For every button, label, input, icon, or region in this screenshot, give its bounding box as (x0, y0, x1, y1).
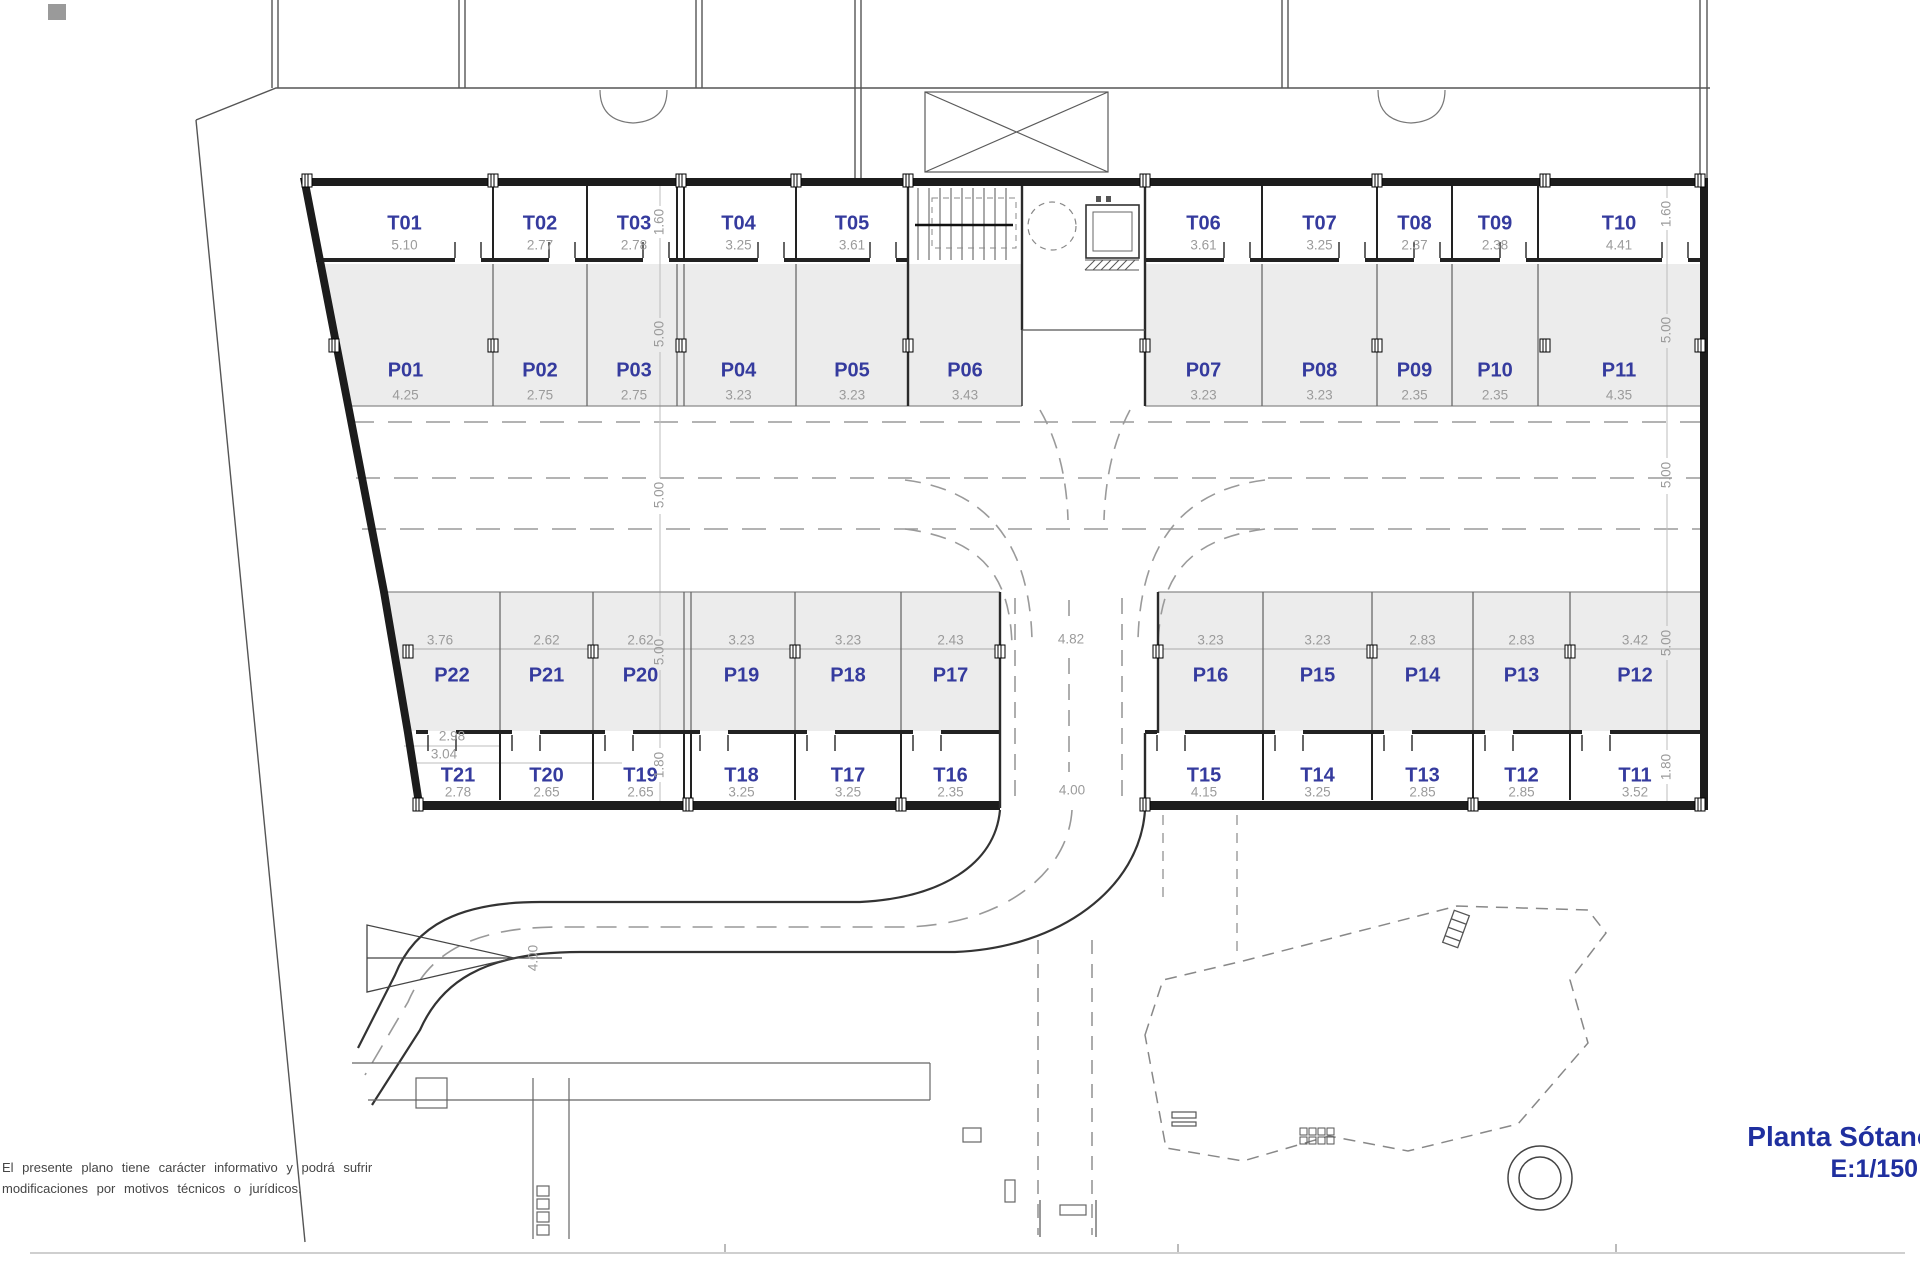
parking-stall-P03 (587, 264, 681, 406)
stall-dim-T07: 3.25 (1306, 238, 1332, 253)
corner-artifact (48, 4, 66, 20)
column-marker (1695, 339, 1705, 352)
stall-dim-P09: 2.35 (1401, 388, 1427, 403)
stall-dim-P03: 2.75 (621, 388, 647, 403)
column-marker (1367, 645, 1377, 658)
parking-stall-P06 (908, 264, 1022, 406)
fountain-circles-icon (1508, 1146, 1572, 1210)
parking-stall-P05 (796, 264, 908, 406)
parking-stall-P12 (1570, 592, 1700, 731)
parking-stall-P15 (1263, 592, 1372, 731)
column-marker (488, 174, 498, 187)
parking-stall-P19 (688, 592, 795, 731)
parking-stall-P20 (593, 592, 688, 731)
stall-label-T05: T05 (835, 212, 869, 234)
stall-dim-T02: 2.77 (527, 238, 553, 253)
column-marker (1140, 798, 1150, 811)
parking-stall-P17 (901, 592, 1000, 731)
stall-dim-T12: 2.85 (1508, 785, 1534, 800)
bench-icon (1172, 1112, 1196, 1126)
elevator-icon (1085, 196, 1139, 270)
column-marker (329, 339, 339, 352)
stall-label-P02: P02 (522, 359, 558, 381)
column-marker (1540, 174, 1550, 187)
stall-dim-T09: 2.38 (1482, 238, 1508, 253)
stall-dim-T05: 3.61 (839, 238, 865, 253)
parking-stall-P14 (1372, 592, 1473, 731)
stall-label-T01: T01 (387, 212, 421, 234)
side-dim-right-3: 5.00 (1659, 630, 1674, 656)
parking-stall-P10 (1452, 264, 1538, 406)
parking-stall-fills (318, 264, 1700, 731)
stall-label-T07: T07 (1302, 212, 1336, 234)
stall-label-T11: T11 (1618, 764, 1651, 786)
stall-dim-T04: 3.25 (725, 238, 751, 253)
stall-label-P13: P13 (1504, 664, 1540, 686)
column-marker (903, 339, 913, 352)
parking-stall-P08 (1262, 264, 1377, 406)
side-dim-right-1: 5.00 (1659, 317, 1674, 343)
stall-dim-P19: 3.23 (728, 633, 754, 648)
extra-dim-3: 2.98 (439, 729, 465, 744)
stall-label-P05: P05 (834, 359, 870, 381)
parking-stall-P04 (681, 264, 796, 406)
stall-label-P10: P10 (1477, 359, 1513, 381)
staircase-icon (915, 188, 1076, 260)
parking-stall-P21 (500, 592, 593, 731)
stall-dim-P16: 3.23 (1197, 633, 1223, 648)
disclaimer-line-1: El presente plano tiene carácter informa… (2, 1158, 482, 1179)
stall-label-P09: P09 (1397, 359, 1433, 381)
column-marker (790, 645, 800, 658)
stall-label-T13: T13 (1405, 764, 1439, 786)
stall-label-P21: P21 (529, 664, 565, 686)
stall-label-P04: P04 (721, 359, 757, 381)
stall-label-T08: T08 (1397, 212, 1431, 234)
landscape-outline (1145, 906, 1606, 1210)
stall-label-P11: P11 (1602, 359, 1636, 381)
extra-dim-1: 4.00 (1059, 783, 1085, 798)
column-marker (896, 798, 906, 811)
extra-dim-4: 3.04 (431, 747, 458, 762)
column-marker (1540, 339, 1550, 352)
title-block: Planta Sótano E:1/150 (1747, 1120, 1920, 1184)
stall-label-T09: T09 (1478, 212, 1512, 234)
stall-label-T03: T03 (617, 212, 651, 234)
bottom-sheet-line (30, 1244, 1905, 1253)
stall-dim-T19: 2.65 (627, 785, 653, 800)
side-dim-left-0: 1.60 (652, 209, 667, 235)
stall-label-P22: P22 (434, 664, 470, 686)
driving-aisle-lane-lines (350, 422, 1700, 529)
stall-dim-T10: 4.41 (1606, 238, 1632, 253)
stall-label-P14: P14 (1405, 664, 1441, 686)
stall-dim-P06: 3.43 (952, 388, 978, 403)
stall-dim-T16: 2.35 (937, 785, 963, 800)
stall-dim-P14: 2.83 (1409, 633, 1435, 648)
stall-dim-T01: 5.10 (391, 238, 417, 253)
side-dim-left-3: 5.00 (652, 639, 667, 665)
stall-label-P20: P20 (623, 664, 659, 686)
column-marker (791, 174, 801, 187)
stall-label-P17: P17 (933, 664, 969, 686)
stall-dim-P17: 2.43 (937, 633, 963, 648)
stall-label-P12: P12 (1617, 664, 1653, 686)
side-dim-left-2: 5.00 (652, 482, 667, 508)
stall-dim-T11: 3.52 (1622, 785, 1648, 800)
stall-dim-P18: 3.23 (835, 633, 861, 648)
side-dim-right-0: 1.60 (1659, 201, 1674, 227)
stall-label-P07: P07 (1186, 359, 1222, 381)
column-marker (1372, 339, 1382, 352)
page-title: Planta Sótano (1747, 1120, 1920, 1154)
stall-dim-T06: 3.61 (1190, 238, 1216, 253)
column-marker (1140, 174, 1150, 187)
stall-dim-T17: 3.25 (835, 785, 861, 800)
stall-dim-T20: 2.65 (533, 785, 559, 800)
stall-label-P18: P18 (830, 664, 866, 686)
stall-label-T18: T18 (724, 764, 758, 786)
stall-dim-T03: 2.78 (621, 238, 647, 253)
parking-stall-P02 (493, 264, 587, 406)
stall-label-P08: P08 (1302, 359, 1338, 381)
extra-dim-2: 4.00 (526, 945, 541, 971)
parking-stall-P09 (1377, 264, 1452, 406)
stall-label-T02: T02 (523, 212, 557, 234)
basement-floor-plan-page: T015.10T022.77T032.78T043.25T053.61T063.… (0, 0, 1920, 1280)
column-marker (683, 798, 693, 811)
column-marker (1695, 798, 1705, 811)
stall-dim-P11: 4.35 (1606, 388, 1632, 403)
stall-dim-P22: 3.76 (427, 633, 453, 648)
column-marker (1372, 174, 1382, 187)
side-dim-left-1: 5.00 (652, 321, 667, 347)
column-marker (413, 798, 423, 811)
street-level-structures (352, 1063, 1096, 1239)
stall-dim-T21: 2.78 (445, 785, 471, 800)
ramp-road-curves (358, 810, 1237, 1235)
stall-label-T15: T15 (1187, 764, 1221, 786)
disclaimer-line-2: modificaciones por motivos técnicos o ju… (2, 1179, 482, 1200)
stall-label-T10: T10 (1602, 212, 1636, 234)
stall-dim-T15: 4.15 (1191, 785, 1217, 800)
stall-dim-P15: 3.23 (1304, 633, 1330, 648)
stair-bulkhead-icon (925, 92, 1108, 172)
stall-label-P15: P15 (1300, 664, 1336, 686)
parking-stall-P07 (1145, 264, 1262, 406)
column-marker (1468, 798, 1478, 811)
stall-dim-T13: 2.85 (1409, 785, 1435, 800)
stall-label-T04: T04 (721, 212, 756, 234)
stall-label-P16: P16 (1193, 664, 1229, 686)
stall-label-T12: T12 (1504, 764, 1538, 786)
column-marker (903, 174, 913, 187)
stall-label-P01: P01 (388, 359, 424, 381)
entrance-door-arcs (600, 90, 1445, 123)
stall-dim-P05: 3.23 (839, 388, 865, 403)
column-marker (1565, 645, 1575, 658)
stall-label-T20: T20 (529, 764, 563, 786)
side-dim-left-4: 1.80 (652, 752, 667, 778)
stall-dim-P10: 2.35 (1482, 388, 1508, 403)
stall-label-T06: T06 (1186, 212, 1220, 234)
stall-dim-P08: 3.23 (1306, 388, 1332, 403)
column-marker (676, 174, 686, 187)
disclaimer-note: El presente plano tiene carácter informa… (2, 1158, 482, 1200)
stall-dim-P04: 3.23 (725, 388, 751, 403)
parking-stall-P13 (1473, 592, 1570, 731)
stall-dim-T18: 3.25 (728, 785, 754, 800)
stall-label-P03: P03 (616, 359, 652, 381)
column-marker (995, 645, 1005, 658)
stall-dim-P12: 3.42 (1622, 633, 1648, 648)
stall-label-P19: P19 (724, 664, 760, 686)
side-dim-right-4: 1.80 (1659, 754, 1674, 780)
stall-label-T14: T14 (1300, 764, 1335, 786)
parking-stall-P11 (1538, 264, 1700, 406)
column-marker (588, 645, 598, 658)
column-marker (1140, 339, 1150, 352)
parking-stall-P18 (795, 592, 901, 731)
pool-ladder-icon (1443, 910, 1470, 947)
column-marker (302, 174, 312, 187)
stall-label-T17: T17 (831, 764, 865, 786)
parking-stall-P16 (1158, 592, 1263, 731)
column-marker (488, 339, 498, 352)
stall-label-T16: T16 (933, 764, 967, 786)
extra-dim-0: 4.82 (1058, 632, 1084, 647)
stall-dim-P13: 2.83 (1508, 633, 1534, 648)
column-marker (403, 645, 413, 658)
side-dim-right-2: 5.00 (1659, 462, 1674, 488)
stall-dim-T08: 2.37 (1401, 238, 1427, 253)
floor-plan-drawing: T015.10T022.77T032.78T043.25T053.61T063.… (0, 0, 1920, 1280)
column-marker (1695, 174, 1705, 187)
stall-dim-P21: 2.62 (533, 633, 559, 648)
stall-label-P06: P06 (947, 359, 983, 381)
drawing-scale: E:1/150 (1747, 1154, 1918, 1184)
stall-dim-P02: 2.75 (527, 388, 553, 403)
column-marker (1153, 645, 1163, 658)
column-marker (676, 339, 686, 352)
stall-dim-T14: 3.25 (1304, 785, 1330, 800)
stall-dim-P01: 4.25 (392, 388, 418, 403)
stall-label-T21: T21 (441, 764, 475, 786)
stall-dim-P20: 2.62 (627, 633, 653, 648)
stall-dim-P07: 3.23 (1190, 388, 1216, 403)
